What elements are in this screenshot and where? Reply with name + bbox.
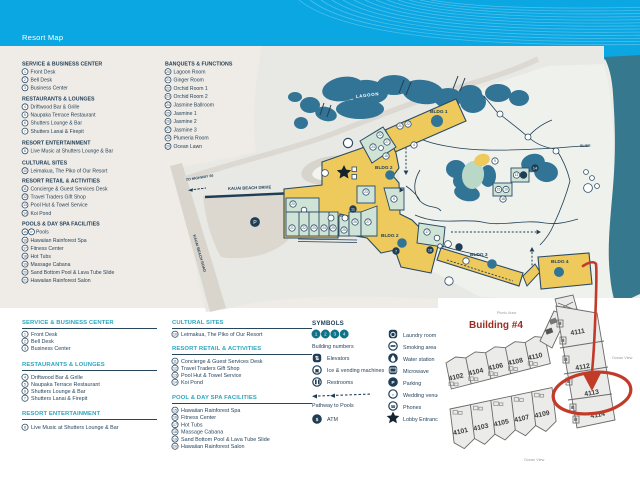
svg-text:11: 11	[173, 359, 177, 363]
svg-text:23: 23	[312, 226, 316, 230]
svg-text:RESORT ENTERTAINMENT: RESORT ENTERTAINMENT	[22, 411, 100, 417]
svg-text:Smoking area: Smoking area	[403, 345, 436, 351]
svg-text:21: 21	[166, 78, 170, 82]
svg-text:Shutters Lounge & Bar: Shutters Lounge & Bar	[31, 389, 86, 395]
svg-text:Koi Pond: Koi Pond	[31, 211, 52, 217]
svg-text:12: 12	[23, 195, 27, 199]
svg-text:$: $	[316, 417, 319, 422]
svg-text:21: 21	[290, 226, 294, 230]
svg-text:Fitness Center: Fitness Center	[181, 415, 216, 421]
svg-text:Shutters Lounge & Bar: Shutters Lounge & Bar	[31, 121, 83, 127]
svg-text:23: 23	[166, 95, 170, 99]
svg-text:Leimakua, The Piko of Our Reso: Leimakua, The Piko of Our Resort	[181, 332, 263, 338]
svg-text:Pool Hut & Towel Service: Pool Hut & Towel Service	[31, 203, 88, 209]
svg-text:Driftwood Bar & Grille: Driftwood Bar & Grille	[31, 375, 83, 381]
svg-text:Naupaka Terrace Restaurant: Naupaka Terrace Restaurant	[31, 113, 97, 119]
svg-text:7: 7	[24, 396, 26, 400]
svg-text:3: 3	[24, 346, 26, 350]
svg-text:Massage Cabana: Massage Cabana	[181, 430, 223, 436]
svg-text:8: 8	[24, 149, 26, 153]
svg-text:Travel Traders Gift Shop: Travel Traders Gift Shop	[31, 195, 86, 201]
svg-text:11: 11	[23, 187, 27, 191]
svg-text:20: 20	[291, 202, 295, 206]
svg-text:☎: ☎	[391, 405, 396, 409]
svg-text:Front Desk: Front Desk	[31, 69, 56, 75]
svg-text:21: 21	[398, 124, 402, 128]
svg-text:12: 12	[173, 366, 177, 370]
svg-text:18: 18	[173, 430, 177, 434]
svg-text:20: 20	[23, 270, 27, 274]
svg-text:BLDG 1: BLDG 1	[430, 109, 448, 115]
svg-text:29: 29	[166, 145, 170, 149]
svg-text:Ocean View: Ocean View	[612, 356, 633, 360]
svg-text:20: 20	[166, 70, 170, 74]
svg-text:Resort Map: Resort Map	[22, 33, 63, 42]
svg-text:Leimakua, The Piko of Our Reso: Leimakua, The Piko of Our Resort	[31, 168, 108, 174]
svg-text:22: 22	[406, 122, 410, 126]
svg-text:Lagoon Room: Lagoon Room	[174, 69, 206, 75]
svg-text:9: 9	[494, 159, 496, 163]
svg-text:24: 24	[322, 226, 326, 230]
svg-text:7: 7	[395, 249, 397, 253]
svg-text:28: 28	[166, 136, 170, 140]
svg-text:Laundry room: Laundry room	[403, 333, 437, 339]
svg-text:Lobby Entrance: Lobby Entrance	[403, 417, 441, 423]
svg-text:Massage Cabana: Massage Cabana	[31, 262, 71, 268]
svg-text:Ginger Room: Ginger Room	[174, 78, 204, 84]
svg-text:26: 26	[353, 220, 357, 224]
svg-text:17: 17	[425, 230, 429, 234]
svg-text:Phones: Phones	[403, 405, 422, 411]
svg-text:1: 1	[24, 70, 26, 74]
svg-text:6: 6	[24, 389, 26, 393]
svg-text:11: 11	[351, 207, 355, 211]
svg-text:27: 27	[366, 220, 370, 224]
svg-text:18: 18	[23, 254, 27, 258]
svg-text:Sand Bottom Pool & Lava Tube S: Sand Bottom Pool & Lava Tube Slide	[31, 270, 115, 276]
svg-text:1: 1	[315, 332, 318, 337]
svg-text:POOL & DAY SPA FACILITIES: POOL & DAY SPA FACILITIES	[172, 395, 257, 401]
svg-text:19: 19	[173, 437, 177, 441]
svg-text:Pool Hut & Towel Service: Pool Hut & Towel Service	[181, 373, 241, 379]
svg-text:4: 4	[24, 105, 26, 109]
svg-text:Shutters Lanai & Firepit: Shutters Lanai & Firepit	[31, 396, 88, 402]
svg-text:Concierge & Guest Services Des: Concierge & Guest Services Desk	[181, 359, 263, 365]
svg-text:P: P	[391, 380, 394, 385]
svg-text:14: 14	[23, 211, 27, 215]
svg-text:16: 16	[428, 248, 432, 252]
svg-text:Business Center: Business Center	[31, 346, 71, 352]
svg-text:14: 14	[533, 166, 537, 170]
svg-text:14: 14	[173, 380, 177, 384]
svg-text:22: 22	[166, 86, 170, 90]
svg-text:24: 24	[166, 103, 170, 107]
svg-text:Fitness Center: Fitness Center	[31, 246, 64, 252]
svg-text:16: 16	[173, 416, 177, 420]
svg-text:SLIDE: SLIDE	[580, 144, 591, 148]
svg-text:Hawaiian Rainforest Salon: Hawaiian Rainforest Salon	[181, 444, 245, 450]
svg-text:RESORT RETAIL & ACTIVITIES: RESORT RETAIL & ACTIVITIES	[172, 346, 261, 352]
svg-text:Elevators: Elevators	[327, 356, 350, 362]
svg-text:Bell Desk: Bell Desk	[31, 77, 53, 83]
svg-text:6: 6	[393, 197, 395, 201]
svg-text:Plumeria Room: Plumeria Room	[174, 136, 209, 142]
svg-text:5: 5	[24, 382, 26, 386]
svg-text:CULTURAL SITES: CULTURAL SITES	[22, 160, 68, 166]
svg-text:Koi Pond: Koi Pond	[181, 380, 203, 386]
svg-text:Ice & vending machines: Ice & vending machines	[327, 368, 385, 374]
svg-text:BLDG 4: BLDG 4	[551, 259, 569, 265]
svg-text:BANQUETS & FUNCTIONS: BANQUETS & FUNCTIONS	[165, 62, 233, 68]
svg-text:25: 25	[342, 228, 346, 232]
svg-text:27: 27	[166, 128, 170, 132]
svg-text:Orchid Room 1: Orchid Room 1	[174, 86, 208, 92]
svg-text:Travel Traders Gift Shop: Travel Traders Gift Shop	[181, 366, 240, 372]
svg-text:Live Music at Shutters Lounge: Live Music at Shutters Lounge & Bar	[31, 425, 119, 431]
svg-text:Hawaiian Rainforest Salon: Hawaiian Rainforest Salon	[31, 278, 91, 284]
svg-text:BLDG 3: BLDG 3	[470, 252, 488, 258]
svg-text:Business Center: Business Center	[31, 86, 69, 92]
svg-text:21: 21	[23, 278, 27, 282]
svg-text:25: 25	[166, 111, 170, 115]
svg-text:17: 17	[173, 423, 177, 427]
svg-text:Wedding venue: Wedding venue	[403, 393, 440, 399]
svg-text:4: 4	[24, 375, 26, 379]
svg-text:Restrooms: Restrooms	[327, 380, 353, 386]
svg-text:19: 19	[504, 188, 508, 192]
svg-text:BLDG 2: BLDG 2	[381, 233, 399, 239]
svg-text:Hawaiian Rainforest Spa: Hawaiian Rainforest Spa	[31, 238, 87, 244]
svg-text:Water station: Water station	[403, 357, 435, 363]
svg-text:⇅: ⇅	[315, 355, 320, 362]
svg-text:17: 17	[23, 246, 27, 250]
svg-text:Ocean View: Ocean View	[524, 458, 545, 462]
svg-text:15: 15	[497, 188, 501, 192]
svg-text:Parking: Parking	[403, 381, 421, 387]
svg-text:Shutters Lanai & Firepit: Shutters Lanai & Firepit	[31, 129, 85, 135]
svg-text:22: 22	[378, 133, 382, 137]
svg-text:Jasmine 1: Jasmine 1	[174, 111, 197, 117]
svg-text:7: 7	[24, 129, 26, 133]
svg-text:6: 6	[24, 121, 26, 125]
svg-text:13: 13	[23, 203, 27, 207]
svg-text:4: 4	[413, 143, 415, 147]
svg-text:16: 16	[23, 238, 27, 242]
svg-text:2: 2	[24, 339, 26, 343]
svg-text:Picnic Area: Picnic Area	[497, 311, 517, 315]
svg-text:2: 2	[324, 332, 327, 337]
svg-text:Building #4: Building #4	[469, 320, 523, 331]
svg-text:RESORT RETAIL & ACTIVITIES: RESORT RETAIL & ACTIVITIES	[22, 179, 100, 185]
svg-text:CULTURAL SITES: CULTURAL SITES	[172, 320, 224, 326]
svg-text:Front Desk: Front Desk	[31, 332, 58, 338]
svg-text:POOLS & DAY SPA FACILITIES: POOLS & DAY SPA FACILITIES	[22, 222, 100, 228]
svg-text:Jasmine 3: Jasmine 3	[174, 127, 197, 133]
svg-text:Ocean Lawn: Ocean Lawn	[174, 144, 203, 150]
svg-text:SERVICE & BUSINESS CENTER: SERVICE & BUSINESS CENTER	[22, 62, 102, 68]
svg-text:24: 24	[371, 145, 375, 149]
svg-text:Naupaka Terrace Restaurant: Naupaka Terrace Restaurant	[31, 382, 100, 388]
svg-text:RESTAURANTS & LOUNGES: RESTAURANTS & LOUNGES	[22, 362, 105, 368]
svg-text:Hot Tubs: Hot Tubs	[181, 422, 203, 428]
svg-text:20: 20	[173, 444, 177, 448]
svg-text:3: 3	[334, 332, 337, 337]
svg-text:23: 23	[364, 190, 368, 194]
svg-text:Jasmine 2: Jasmine 2	[174, 119, 197, 125]
svg-text:SERVICE & BUSINESS CENTER: SERVICE & BUSINESS CENTER	[22, 320, 114, 326]
svg-text:RESTAURANTS & LOUNGES: RESTAURANTS & LOUNGES	[22, 97, 95, 103]
svg-text:25: 25	[331, 226, 335, 230]
svg-text:ATM: ATM	[327, 417, 338, 423]
svg-text:Bell Desk: Bell Desk	[31, 339, 54, 345]
svg-text:Jasmine Ballroom: Jasmine Ballroom	[174, 103, 214, 109]
svg-text:13: 13	[173, 373, 177, 377]
svg-text:3: 3	[24, 86, 26, 90]
svg-text:10: 10	[23, 169, 27, 173]
svg-text:15: 15	[173, 408, 177, 412]
svg-text:8: 8	[24, 425, 26, 429]
svg-text:Pathway to Pools: Pathway to Pools	[312, 403, 354, 409]
svg-text:1: 1	[24, 332, 26, 336]
svg-text:BLDG 2: BLDG 2	[375, 165, 393, 171]
svg-text:P: P	[30, 230, 32, 234]
svg-text:SYMBOLS: SYMBOLS	[312, 320, 344, 327]
svg-text:▣: ▣	[315, 368, 320, 373]
svg-text:RESORT ENTERTAINMENT: RESORT ENTERTAINMENT	[22, 141, 91, 147]
svg-text:Sand Bottom Pool & Lava Tube S: Sand Bottom Pool & Lava Tube Slide	[181, 437, 270, 443]
svg-text:26: 26	[166, 120, 170, 124]
svg-text:10: 10	[173, 332, 177, 336]
svg-text:Concierge & Guest Services Des: Concierge & Guest Services Desk	[31, 186, 108, 192]
svg-text:Live Music at Shutters Lounge: Live Music at Shutters Lounge & Bar	[31, 149, 114, 155]
svg-text:Hawaiian Rainforest Spa: Hawaiian Rainforest Spa	[181, 408, 240, 414]
svg-text:Building numbers: Building numbers	[312, 344, 354, 350]
svg-text:19: 19	[23, 262, 27, 266]
svg-text:∩: ∩	[392, 392, 395, 397]
svg-text:Driftwood Bar & Grille: Driftwood Bar & Grille	[31, 105, 80, 111]
svg-text:5: 5	[24, 113, 26, 117]
svg-text:Hot Tubs: Hot Tubs	[31, 254, 52, 260]
svg-text:Pools: Pools	[36, 230, 49, 236]
svg-text:16: 16	[384, 154, 388, 158]
svg-text:18: 18	[501, 197, 505, 201]
svg-text:13: 13	[515, 173, 519, 177]
svg-text:P: P	[253, 220, 257, 226]
svg-text:22: 22	[302, 226, 306, 230]
svg-text:2: 2	[24, 78, 26, 82]
svg-text:27: 27	[385, 140, 389, 144]
svg-text:4: 4	[343, 332, 346, 337]
svg-text:15: 15	[23, 230, 27, 234]
svg-text:Microwave: Microwave	[403, 369, 429, 375]
svg-text:Orchid Room 2: Orchid Room 2	[174, 94, 208, 100]
